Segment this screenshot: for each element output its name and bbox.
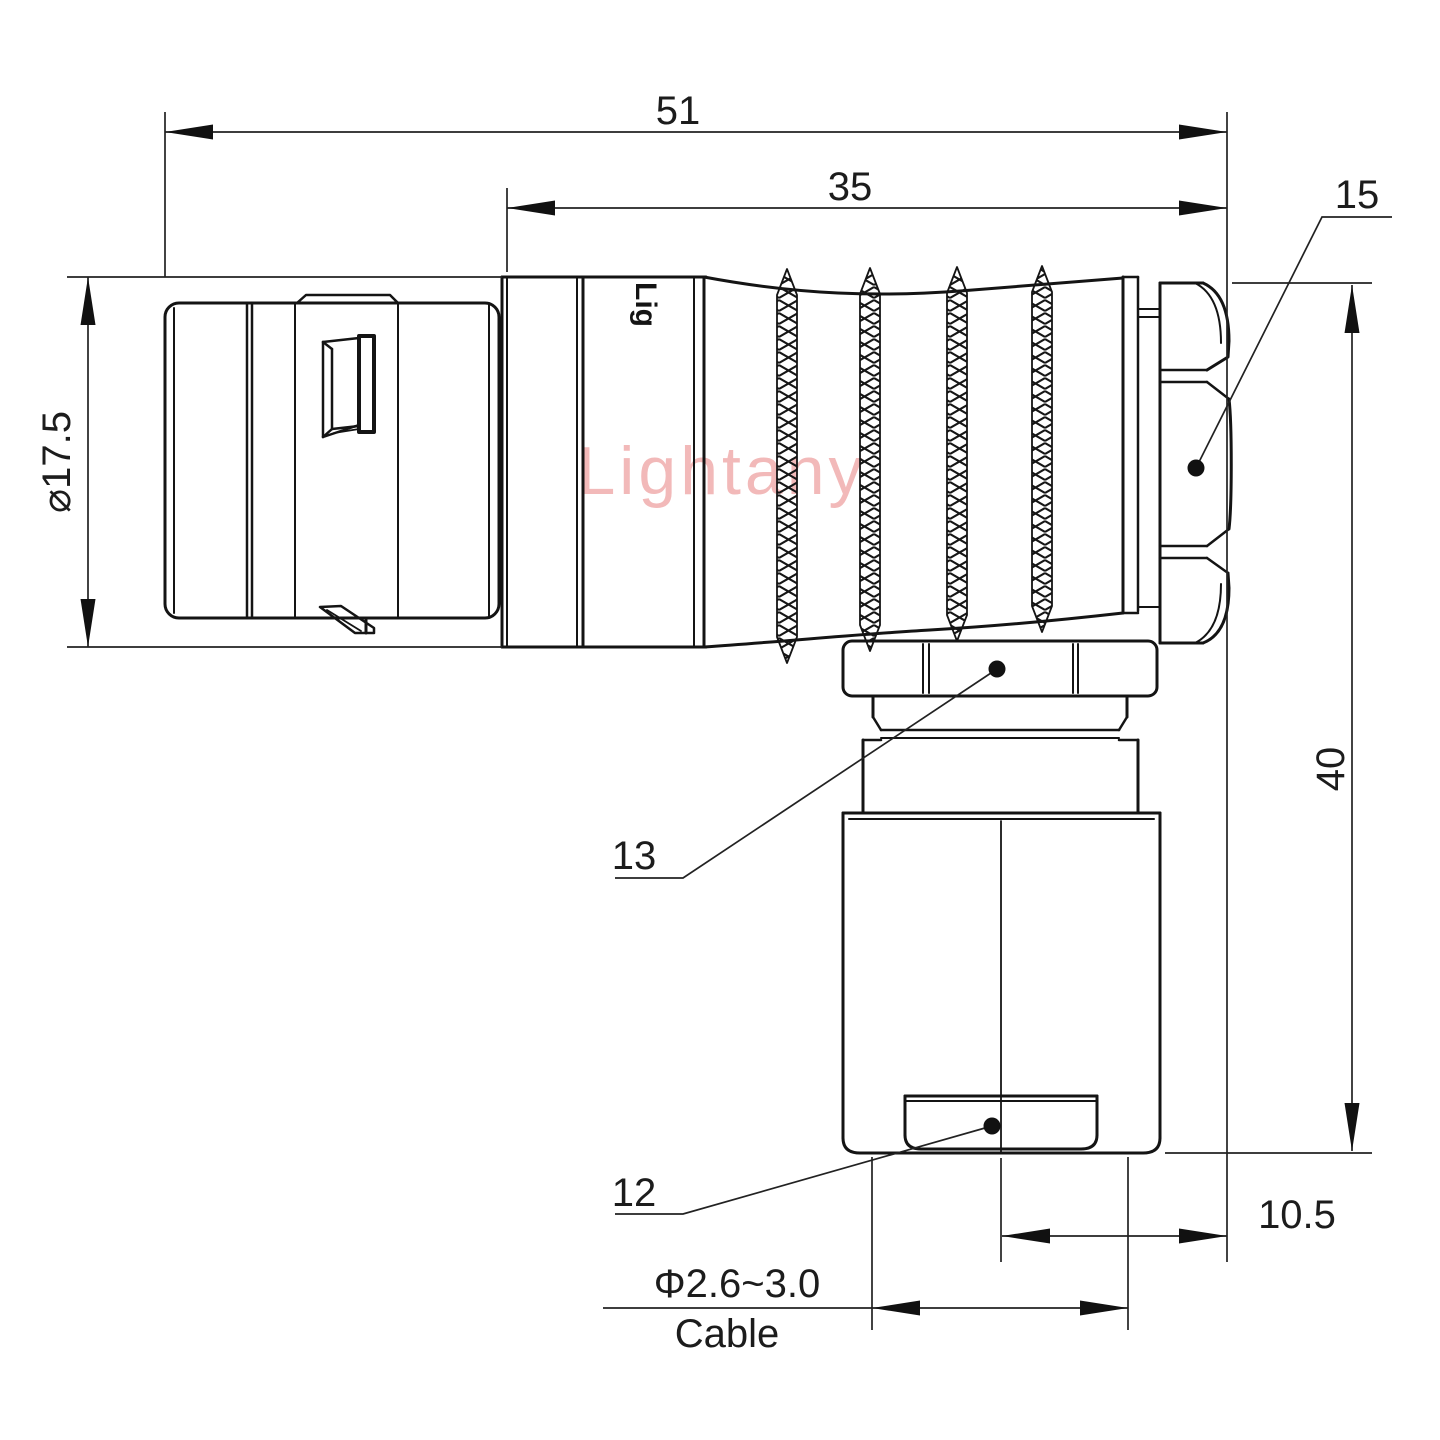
knurl-band-2 (860, 268, 880, 651)
label-overall-height: 40 (1309, 747, 1353, 792)
front-shell (165, 295, 499, 633)
label-rear-nut-callout: 15 (1335, 173, 1380, 217)
knurl-band-4 (1032, 266, 1052, 632)
body-marking-text: Lig (629, 282, 662, 327)
leader-coupling-nut (615, 669, 997, 878)
label-cable-axis-offset: 10.5 (1258, 1193, 1336, 1237)
label-cable-diameter-range: Φ2.6~3.0 (654, 1262, 820, 1306)
knurl-band-3 (947, 267, 967, 641)
label-front-shell-diameter: ⌀17.5 (35, 411, 79, 513)
leader-rear-nut (1196, 217, 1392, 468)
key-window (323, 336, 374, 437)
label-overall-length: 51 (656, 89, 701, 133)
leader-cable-bushing (615, 1126, 992, 1214)
label-cable-bushing-callout: 12 (612, 1171, 657, 1215)
leader-lines (615, 217, 1392, 1214)
watermark-text: Lightany (577, 433, 866, 509)
cable-barrel (843, 696, 1160, 1153)
dimension-lines (67, 112, 1372, 1330)
technical-drawing-canvas: Lightany (0, 0, 1440, 1440)
label-cable-word: Cable (675, 1312, 780, 1356)
label-rear-section-length: 35 (828, 165, 873, 209)
knurl-band-1 (777, 269, 797, 663)
connector-outline (165, 266, 1231, 1153)
label-coupling-nut-callout: 13 (612, 834, 657, 878)
